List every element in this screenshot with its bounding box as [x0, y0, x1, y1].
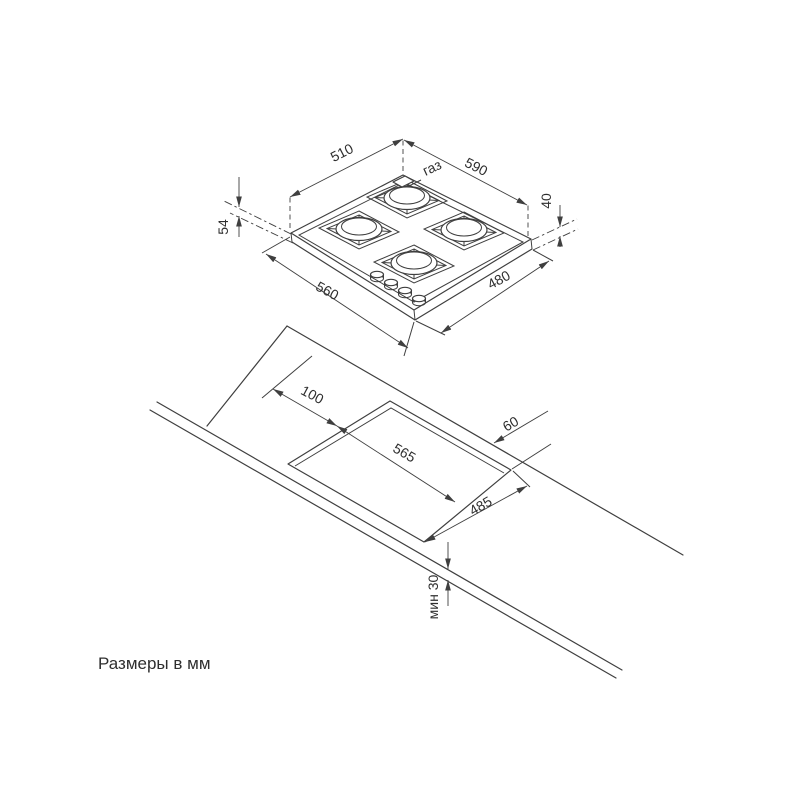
dim-485-label: 485 — [466, 493, 494, 519]
hob-isometric-view: 510 590 газ 54 40 560 480 — [215, 138, 578, 356]
cutout-opening — [288, 401, 511, 542]
worktop-outline — [150, 326, 683, 678]
technical-drawing-page: 510 590 газ 54 40 560 480 — [0, 0, 800, 800]
dim-565-label: 565 — [390, 440, 418, 466]
dim-590-label: 590 — [462, 154, 490, 179]
dim-560-label: 560 — [313, 278, 341, 303]
dim-510-label: 510 — [328, 140, 356, 165]
gas-hob-installation-drawing: 510 590 газ 54 40 560 480 — [0, 0, 800, 800]
dim-min30-label: мин 30 — [425, 574, 441, 619]
dim-40-label: 40 — [538, 193, 554, 209]
dim-54-label: 54 — [215, 219, 231, 235]
worktop-cutout-view: 100 565 60 485 мин 30 — [150, 326, 683, 678]
units-note: Размеры в мм — [98, 654, 211, 673]
dim-100-label: 100 — [298, 382, 326, 407]
dim-60-label: 60 — [500, 413, 522, 435]
